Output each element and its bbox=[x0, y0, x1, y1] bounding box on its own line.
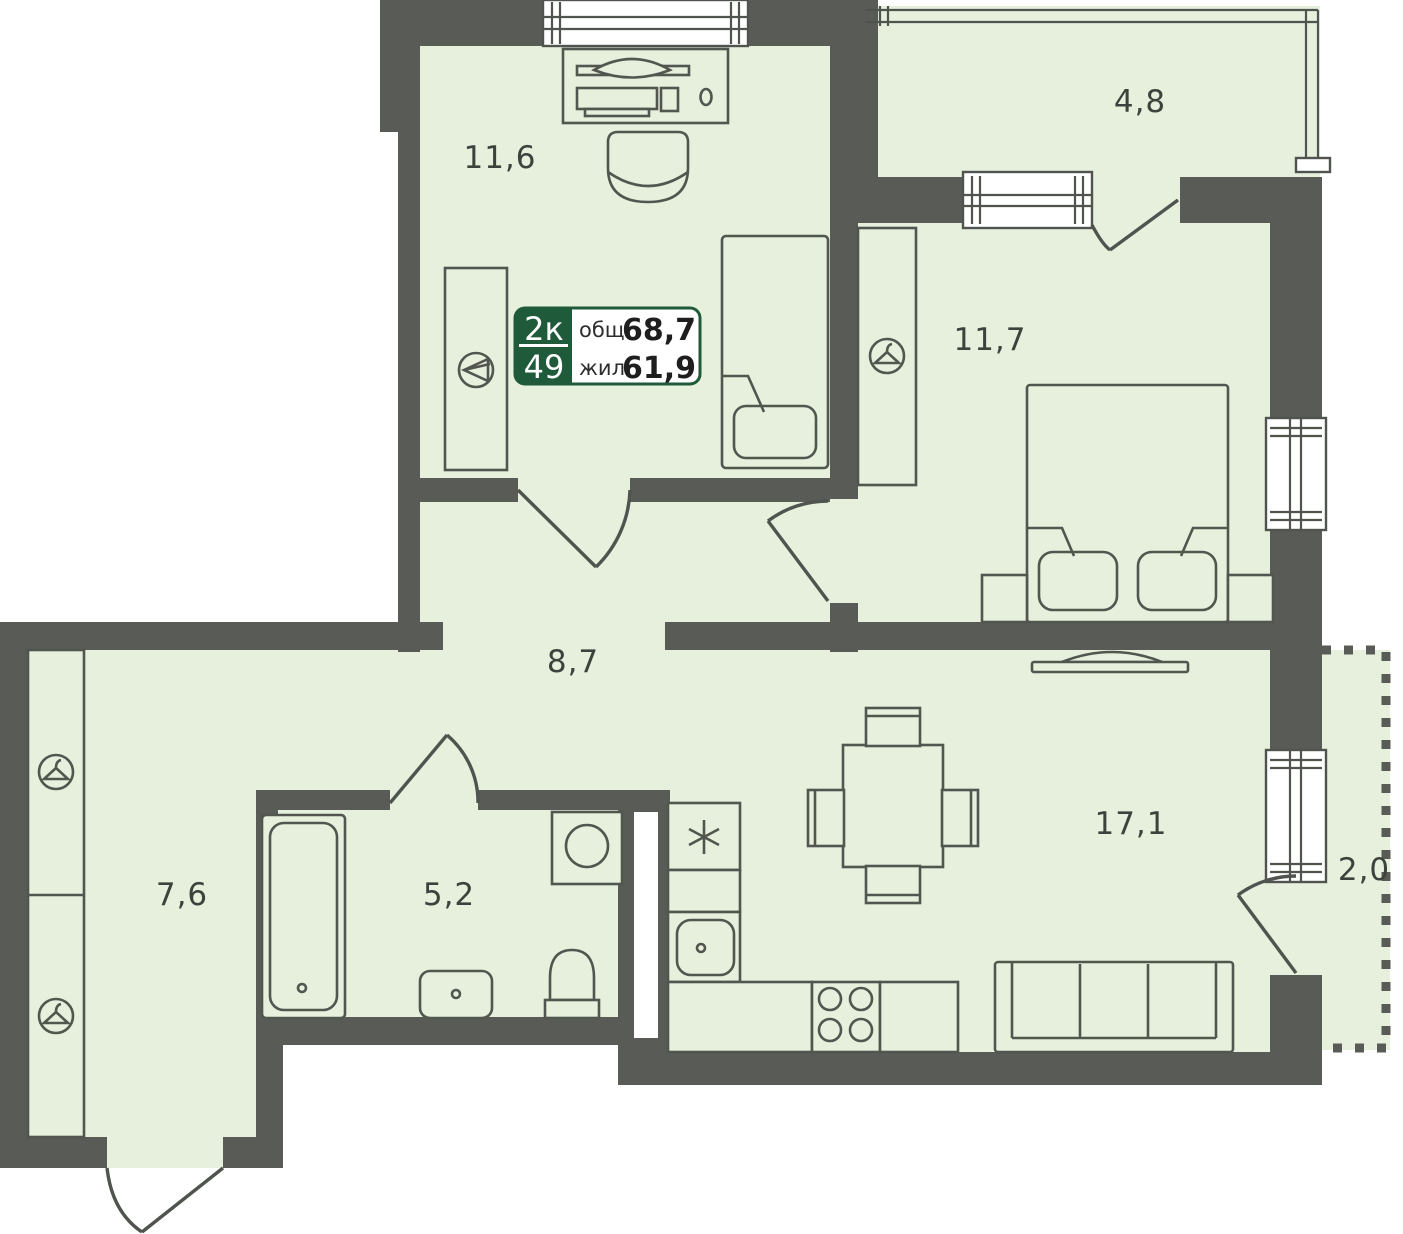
window-bedroom-top bbox=[963, 172, 1092, 228]
wall-study-loggia-divider bbox=[830, 0, 878, 177]
apartment-type: 2к bbox=[524, 310, 564, 348]
keyboard-tray bbox=[585, 109, 649, 116]
keyboard bbox=[577, 88, 657, 109]
toilet-tank bbox=[545, 1000, 599, 1018]
bathtub bbox=[262, 815, 345, 1018]
wall-right-upper bbox=[1270, 223, 1322, 420]
living-area-value: 61,9 bbox=[622, 351, 696, 386]
desk-chair bbox=[608, 132, 688, 202]
wall-right-lower bbox=[1270, 975, 1322, 1085]
washing-machine bbox=[552, 812, 622, 884]
double-bed-pillow-right bbox=[1138, 552, 1216, 610]
floor-balcony bbox=[1322, 650, 1390, 1050]
toilet-bowl bbox=[550, 950, 594, 1000]
sofa bbox=[995, 962, 1233, 1052]
wall-bath-bottom bbox=[256, 1017, 634, 1045]
total-area-value: 68,7 bbox=[622, 313, 696, 348]
window-study bbox=[543, 0, 748, 46]
wall-kitchen-bottom bbox=[658, 1052, 1322, 1085]
door-entrance bbox=[107, 1168, 223, 1232]
wall-right-middle bbox=[1270, 528, 1322, 752]
study-wardrobe bbox=[445, 268, 507, 470]
wall-study-left bbox=[398, 0, 420, 652]
mouse-icon bbox=[701, 89, 712, 105]
loggia-sill bbox=[1296, 158, 1330, 172]
room-label-loggia: 4,8 bbox=[1114, 84, 1166, 120]
wall-bottom-left bbox=[0, 1137, 107, 1168]
window-bedroom-right bbox=[1266, 418, 1326, 530]
floor-loggia bbox=[862, 6, 1320, 177]
room-label-corridor: 7,6 bbox=[156, 877, 208, 913]
wall-study-left-pad bbox=[380, 46, 398, 132]
apartment-number: 49 bbox=[524, 348, 565, 386]
room-label-hall: 8,7 bbox=[547, 644, 599, 680]
floor-bedroom-door-opening bbox=[830, 499, 858, 603]
bedroom-wardrobe bbox=[858, 228, 916, 485]
wall-connector bbox=[256, 1043, 283, 1168]
floor-plan-page: 2к 49 общ. 68,7 жил. 61,9 11,6 4,8 11,7 … bbox=[0, 0, 1403, 1234]
floor-balcony-door-opening bbox=[1270, 878, 1322, 975]
single-bed-pillow bbox=[734, 406, 816, 458]
nightstand-left bbox=[982, 575, 1027, 622]
floor-bathroom-door-opening bbox=[390, 790, 478, 810]
nightstand-right bbox=[1228, 575, 1273, 622]
wall-bath-top-right bbox=[478, 790, 634, 810]
corridor-wardrobe bbox=[28, 650, 84, 1137]
room-label-bedroom: 11,7 bbox=[953, 322, 1026, 358]
floor-entrance-opening bbox=[107, 1137, 223, 1168]
wall-mid-left bbox=[0, 622, 443, 650]
wall-study-bottom-right bbox=[630, 478, 830, 502]
counter-left bbox=[668, 982, 812, 1052]
room-label-balcony: 2,0 bbox=[1338, 852, 1390, 888]
wall-mid-right bbox=[665, 622, 1270, 650]
room-label-study: 11,6 bbox=[463, 140, 536, 176]
room-label-kitchen-living: 17,1 bbox=[1094, 806, 1167, 842]
computer-tower bbox=[661, 88, 678, 111]
wall-bedroom-top-right bbox=[1180, 177, 1322, 223]
bathroom-sink bbox=[420, 971, 492, 1018]
counter-cell bbox=[668, 870, 740, 912]
wall-outer-left bbox=[0, 622, 28, 1168]
wall-bedroom-left bbox=[830, 177, 858, 499]
double-bed-pillow-left bbox=[1039, 552, 1117, 610]
corridor-furniture bbox=[28, 650, 84, 1137]
wall-bath-top-left bbox=[256, 790, 390, 810]
room-label-bathroom: 5,2 bbox=[423, 877, 475, 913]
wall-study-bottom-left bbox=[398, 478, 518, 502]
wall-bedroom-top-left bbox=[855, 177, 965, 223]
dining-table bbox=[843, 745, 943, 867]
window-living-right bbox=[1266, 750, 1326, 882]
counter-right bbox=[880, 982, 958, 1052]
info-plate: 2к 49 общ. 68,7 жил. 61,9 bbox=[515, 308, 700, 386]
duct-shaft bbox=[634, 812, 658, 1038]
floor-plan: 2к 49 общ. 68,7 жил. 61,9 11,6 4,8 11,7 … bbox=[0, 0, 1403, 1234]
